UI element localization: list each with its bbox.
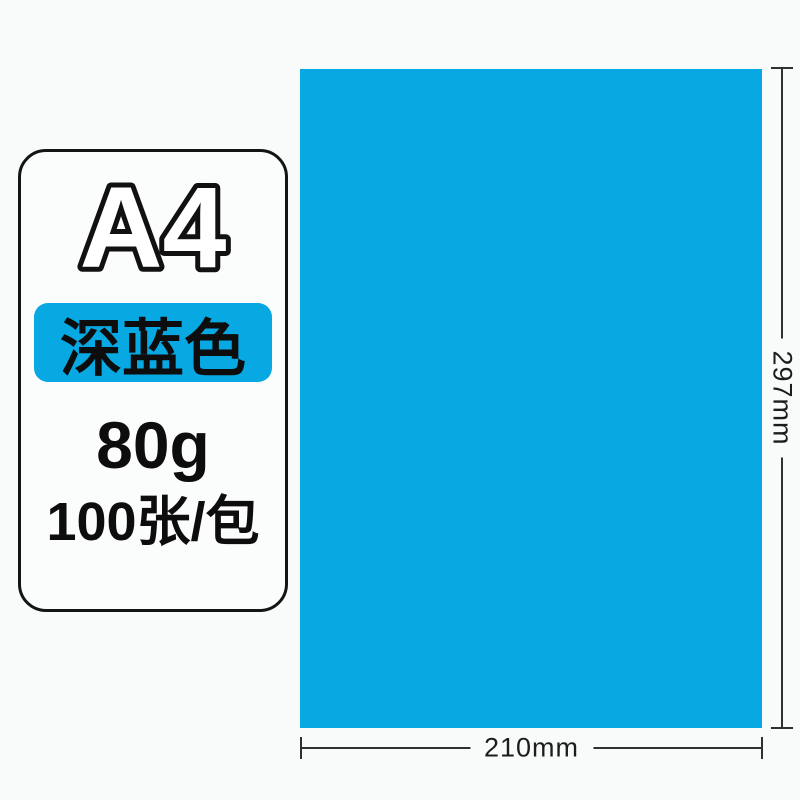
height-dimension-bottom-tick — [771, 727, 793, 729]
product-image: A4 深蓝色 80g 100张/包 297mm 210mm — [0, 0, 800, 800]
paper-sheet — [300, 69, 762, 728]
height-dimension: 297mm — [771, 67, 793, 729]
width-dimension-left-tick — [300, 737, 302, 759]
height-dimension-top-tick — [771, 67, 793, 69]
width-dimension-right-tick — [761, 737, 763, 759]
size-label: A4 — [79, 164, 226, 292]
quantity-label: 100张/包 — [21, 495, 285, 549]
height-dimension-label: 297mm — [764, 338, 800, 457]
color-badge: 深蓝色 — [34, 303, 272, 382]
size-label-graphic: A4 — [21, 152, 285, 292]
weight-label: 80g — [21, 412, 285, 478]
product-info-card: A4 深蓝色 80g 100张/包 — [18, 149, 288, 612]
width-dimension-label: 210mm — [470, 731, 593, 766]
width-dimension: 210mm — [300, 737, 763, 759]
